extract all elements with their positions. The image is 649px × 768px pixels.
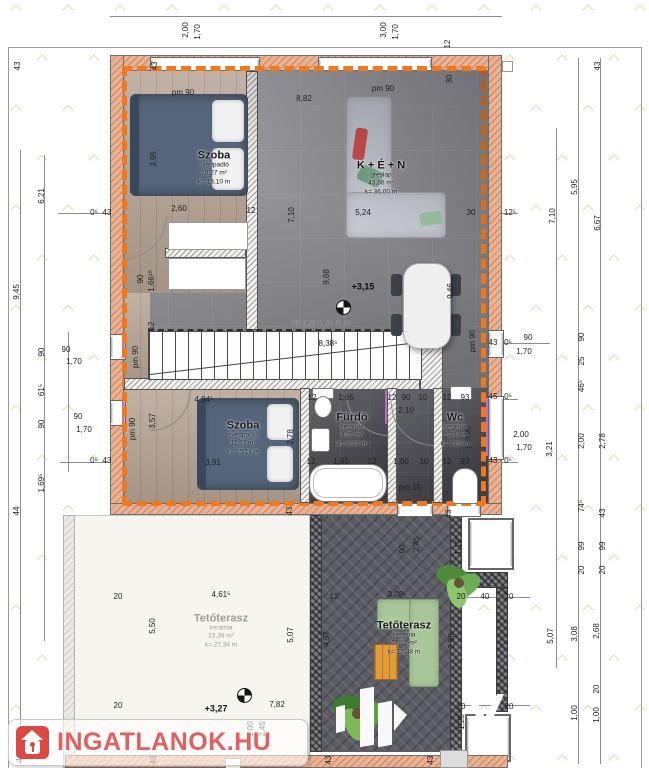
pattern-arrow [10,4,21,15]
wc-basin-icon [450,386,472,400]
pillow [212,100,244,142]
window-right-2 [488,396,504,460]
dimension-line [68,332,69,472]
room-perimeter: k= 27,34 m [194,641,248,649]
staircase-dashed-line [148,329,420,331]
room-name: Wc [441,411,470,423]
logo-letter: N [474,726,482,738]
house-roof-icon [21,730,43,740]
pattern-arrow [322,4,333,15]
room-perimeter: k= 15,14 m [227,448,259,456]
room-label-szoba1: Szoba svédpadló 10,27 m² k= 13,10 m [198,149,230,186]
level-mark-icon [237,688,252,703]
room-label-nappali: K + É + N greslap 43,86 m² k= 36,00 m [357,159,405,196]
pattern-arrow [530,4,541,15]
dimension-line [600,58,601,764]
room-name: Szoba [198,149,230,161]
dimension-line [44,155,45,641]
skylight-window-top [468,518,514,570]
terrace-right-wall [450,515,462,752]
pattern-arrow [582,4,593,15]
pattern-arrow [218,4,229,15]
room-label-terasz-jobb: Tetőterasz kerámia 17,21 m² k= 17,48 m [377,619,431,656]
room-name: Tetőterasz [377,619,431,631]
chair [450,274,461,296]
headboard [197,398,206,490]
dimension-line [578,58,579,764]
room-name: Szoba [227,419,259,431]
room-perimeter: k= 13,10 m [198,178,230,186]
dimension-line [556,128,557,668]
room-area: 17,21 m² [377,640,431,648]
logo-shape [336,705,345,733]
logo-shape [360,687,374,747]
chair [391,274,402,296]
room-perimeter: k= 7,00 m [441,440,470,448]
chair [450,314,461,336]
bottom-wall-opening2 [440,750,468,768]
room-perimeter: k= 8,34 m [336,440,367,448]
toilet-bowl-icon [314,396,332,418]
room-area: 11,37 m² [227,440,259,448]
logo-shape [378,701,392,747]
radiator-mark [486,398,488,456]
room-label-furdo: Fürdő kerámia 4,01 m² k= 8,34 m [336,411,367,448]
room-perimeter: k= 17,48 m [377,648,431,656]
room-area: 23,36 m² [194,633,248,641]
level-mark-icon [336,300,351,315]
pattern-arrow [270,4,281,15]
pattern-arrow [114,4,125,15]
room-name: Fürdő [336,411,367,423]
stair-note: PF 4,25 /1,00 /0,35 [291,321,351,328]
staircase [148,331,422,380]
keyhole-stem-icon [32,746,34,752]
bathtub-icon [309,464,387,502]
room-name: Tetőterasz [194,612,248,624]
terrace-divider-wall [310,515,322,752]
room-floor-type: kerámia [194,624,248,632]
room-area: 4,01 m² [336,432,367,440]
terrace-outer-column [496,588,508,712]
room-area: 10,27 m² [198,170,230,178]
plant-pot [454,578,464,588]
pattern-arrow [426,4,437,15]
wardrobe [168,258,246,290]
room-area: 2,38 m² [441,432,470,440]
pillow [267,446,293,482]
pattern-arrow [478,4,489,15]
wardrobe [168,222,248,250]
room-perimeter: k= 36,00 m [357,188,405,196]
room-label-wc: Wc kerámia 2,38 m² k= 7,00 m [441,411,470,448]
wc-toilet-icon [452,468,478,504]
room-label-terasz-bal: Tetőterasz kerámia 23,36 m² k= 27,34 m [194,612,248,649]
headboard [130,94,139,196]
dining-table [403,263,451,349]
room-name: K + É + N [357,159,405,171]
window-right-1 [488,330,504,358]
room-label-szoba2: Szoba svédpadló 11,37 m² k= 15,14 m [227,419,259,456]
pillow [267,404,293,440]
dimension-line [20,150,21,764]
pattern-arrow [166,4,177,15]
pattern-arrow [374,4,385,15]
dimension-line [110,16,502,17]
chair [391,314,402,336]
pattern-arrow [634,4,645,15]
ingatlanok-house-icon [16,726,49,759]
watermark: INGATLANOK.HU [8,719,308,766]
exterior-unit [502,61,513,72]
room-area: 43,86 m² [357,180,405,188]
pattern-arrow [62,4,73,15]
washbasin-icon [311,428,330,452]
watermark-brand: INGATLANOK.HU [57,728,271,757]
floor-plan: Szoba svédpadló 10,27 m² k= 13,10 m K + … [0,0,649,768]
